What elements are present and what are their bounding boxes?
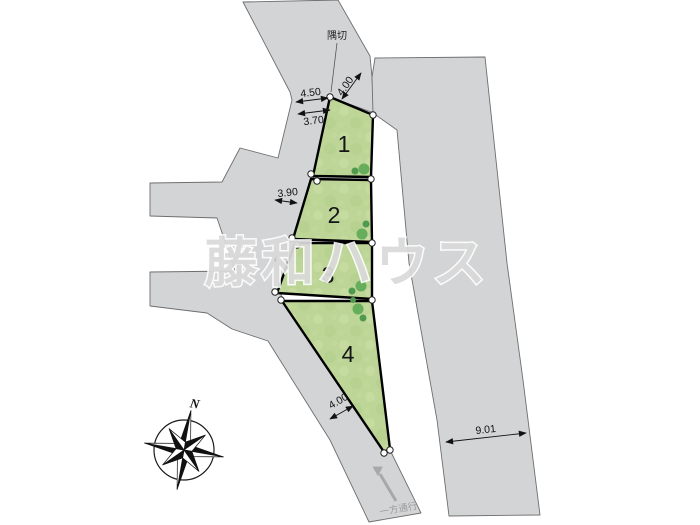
site-plan: 1 2 3 4 4.50 3.70 4.00 bbox=[0, 0, 700, 525]
compass-rose: N bbox=[145, 395, 224, 489]
lot-1-number: 1 bbox=[338, 131, 351, 157]
dimension-west-road-value: 3.90 bbox=[277, 186, 299, 200]
dimension-top-road-outer-value: 4.50 bbox=[300, 86, 322, 100]
lot-4-number: 4 bbox=[342, 341, 355, 367]
dimension-east-road-value: 9.01 bbox=[475, 423, 497, 437]
dimension-top-road-inner-value: 3.70 bbox=[303, 114, 325, 128]
lot-2-number: 2 bbox=[328, 202, 341, 228]
watermark-text: 藤和ハウス bbox=[205, 234, 490, 293]
compass-north-label: N bbox=[188, 395, 201, 412]
site-plan-svg: 1 2 3 4 4.50 3.70 4.00 bbox=[0, 0, 700, 525]
corner-cut-label: 隅切 bbox=[327, 30, 347, 42]
